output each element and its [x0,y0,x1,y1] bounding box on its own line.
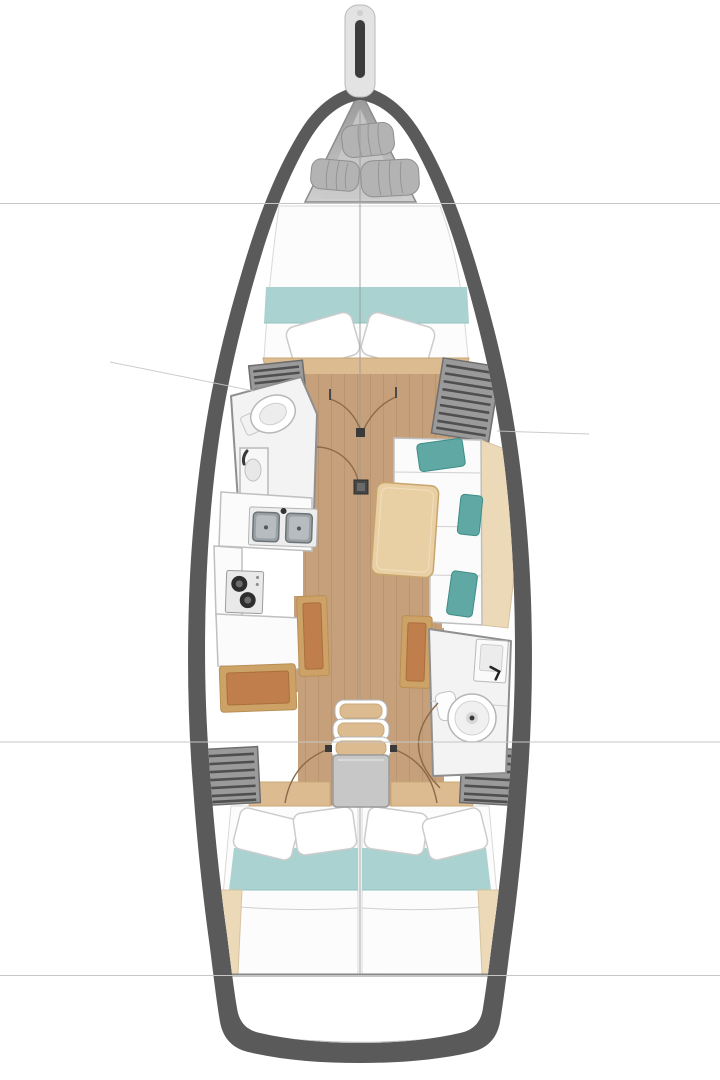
sofa-teal-cushion [416,438,465,472]
bowsprit [345,5,375,97]
sail-roll [360,159,420,198]
sofa-teal-cushion [457,494,483,536]
berth-pillow [363,806,428,856]
companionway [331,700,391,807]
settee-bench-starboard [400,615,432,688]
saloon-table [371,482,439,578]
companionway-platform [333,755,389,807]
berth-teal-runner [229,848,358,890]
nav-seat [219,664,297,713]
vanity-sink [474,639,509,683]
boat-floor-plan [0,0,720,1080]
floor-plan-drawing [0,0,720,1080]
sail-roll [310,158,360,192]
anchor-channel [355,20,365,78]
stove [225,570,263,613]
galley-lower-counter [216,614,300,669]
galley-sink [248,507,317,547]
berth-teal-runner [362,848,491,890]
berth-pillow [292,806,357,856]
aft-head [418,629,511,788]
berth-teal-runner [264,287,469,323]
sofa-teal-cushion [446,570,478,617]
forward-berth [263,206,469,376]
sail-roll [340,121,395,158]
mast-step [354,480,368,494]
settee-bench-port [297,596,330,677]
